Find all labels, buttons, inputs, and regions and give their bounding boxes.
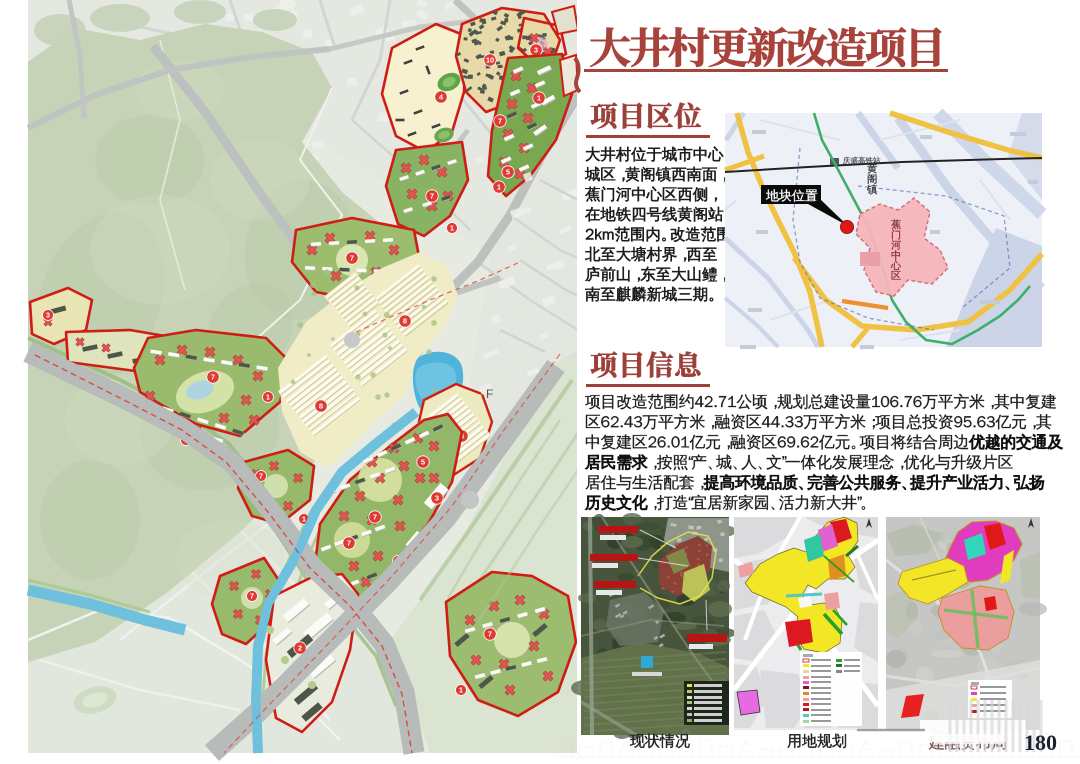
svg-text:1: 1	[302, 515, 306, 524]
svg-text:1: 1	[497, 183, 501, 192]
svg-text:3: 3	[534, 46, 538, 55]
svg-text:180: 180	[1024, 730, 1057, 755]
svg-text:1: 1	[459, 686, 463, 695]
svg-text:3: 3	[46, 311, 50, 320]
svg-text:7: 7	[211, 373, 215, 382]
svg-text:7: 7	[373, 513, 377, 522]
svg-text:7: 7	[347, 539, 351, 548]
svg-text:7: 7	[250, 592, 254, 601]
svg-text:1: 1	[537, 94, 541, 103]
svg-text:5: 5	[421, 458, 425, 467]
svg-text:8: 8	[403, 317, 407, 326]
svg-text:7: 7	[498, 117, 502, 126]
svg-text:7: 7	[259, 472, 263, 481]
svg-text:1: 1	[266, 393, 270, 402]
svg-text:F: F	[486, 387, 493, 401]
svg-text:8: 8	[319, 402, 323, 411]
svg-text:2: 2	[298, 644, 302, 653]
svg-text:7: 7	[350, 254, 354, 263]
svg-text:1: 1	[450, 224, 454, 233]
svg-text:7: 7	[430, 192, 434, 201]
svg-text:7: 7	[488, 630, 492, 639]
svg-text:3: 3	[435, 494, 439, 503]
svg-text:10: 10	[486, 56, 494, 65]
svg-text:5: 5	[506, 168, 510, 177]
